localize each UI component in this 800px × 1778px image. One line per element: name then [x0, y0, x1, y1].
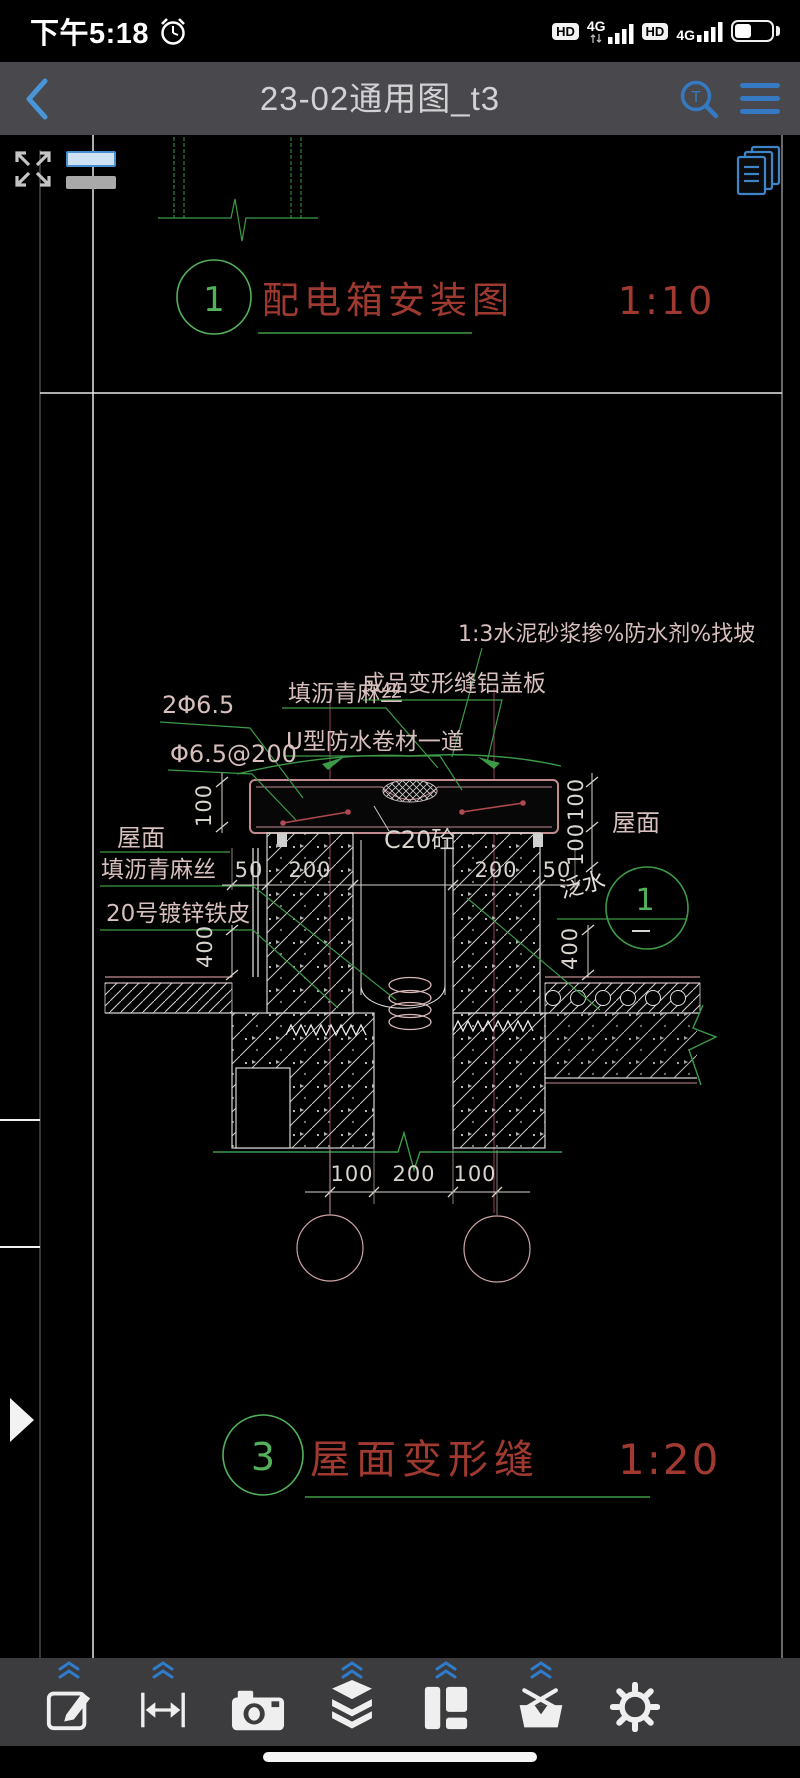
annotation-membrane: U型防水卷材一道 — [286, 729, 464, 755]
dim-400-left: 400 — [193, 925, 217, 968]
detail-1-number: 1 — [203, 280, 225, 320]
dim-100-bottom-right: 100 — [453, 1162, 496, 1186]
app-screen: 1 配电箱安装图 1:10 — [0, 0, 800, 1778]
network-type-2: 4G — [676, 28, 695, 42]
menu-button[interactable] — [734, 62, 786, 135]
gear-icon — [610, 1682, 660, 1732]
status-left: 下午5:18 — [30, 10, 188, 52]
expansion-joint-drawing: 1 — [100, 622, 755, 1282]
detail-3-number: 3 — [251, 1435, 275, 1479]
back-chevron-icon — [21, 76, 51, 122]
edit-tool-button[interactable] — [40, 1660, 98, 1744]
home-indicator[interactable] — [263, 1752, 537, 1762]
dim-50-left: 50 — [235, 858, 264, 882]
annotation-roof-right: 屋面 — [612, 809, 660, 837]
measure-icon — [138, 1688, 188, 1732]
camera-icon — [231, 1688, 285, 1732]
fullscreen-icon — [10, 146, 56, 192]
layers-icon — [327, 1680, 377, 1732]
line-style-alt-icon — [66, 176, 116, 189]
dim-100-bottom-left: 100 — [330, 1162, 373, 1186]
joint-filler-coil — [389, 978, 431, 1030]
line-style-button[interactable] — [66, 151, 116, 189]
right-triangle-icon — [6, 1396, 38, 1444]
toolbox-tool-button[interactable] — [512, 1660, 570, 1744]
detail-3-title: 屋面变形缝 — [310, 1437, 540, 1483]
annotation-concrete: C20砼 — [384, 826, 455, 854]
hamburger-menu-icon — [738, 81, 782, 117]
annotation-texts: 1:3水泥砂浆掺%防水剂%找坡 成品变形缝铝盖板 填沥青麻丝 U型防水卷材一道 … — [101, 622, 755, 927]
dim-100-left: 100 — [192, 784, 216, 827]
fullscreen-button[interactable] — [10, 146, 56, 195]
detail-1-scale: 1:10 — [618, 279, 715, 323]
line-style-selected-icon — [66, 151, 116, 167]
sheets-stack-icon — [733, 144, 785, 196]
battery-fill — [735, 24, 751, 38]
detail-1-title: 配电箱安装图 — [262, 279, 514, 322]
layout-blocks-icon — [422, 1684, 470, 1732]
data-arrows-icon — [590, 33, 602, 44]
status-bar: 下午5:18 HD 4G — [0, 0, 800, 62]
dim-200-left: 200 — [288, 858, 331, 882]
measure-tool-button[interactable] — [134, 1660, 192, 1744]
signal-bars-icon-1 — [608, 22, 634, 44]
annotation-roof-left: 屋面 — [117, 824, 165, 852]
left-roof-slab — [105, 977, 232, 1013]
expand-up-chevron-icon — [528, 1660, 554, 1680]
annotation-rebar-b: Φ6.5@200 — [170, 740, 297, 768]
layers-tool-button[interactable] — [323, 1660, 381, 1744]
signal-group-2: 4G — [676, 20, 723, 42]
expand-up-chevron-icon — [339, 1660, 365, 1680]
edit-icon — [44, 1684, 94, 1732]
annotation-asphalt-left: 填沥青麻丝 — [101, 857, 216, 883]
annotation-asphalt-top: 填沥青麻丝 — [288, 681, 403, 707]
alarm-icon — [158, 15, 188, 47]
bubble-number: 1 — [635, 883, 654, 918]
hd-badge-1: HD — [552, 23, 579, 40]
lower-wall-blocks — [232, 1013, 545, 1148]
dim-200-right: 200 — [474, 858, 517, 882]
signal-group-1: 4G — [587, 19, 634, 44]
sheet-manager-button[interactable] — [733, 144, 785, 199]
network-type-1: 4G — [587, 19, 606, 33]
detail-3-title-block: 3 屋面变形缝 1:20 — [223, 1415, 720, 1497]
hd-badge-2: HD — [642, 23, 669, 40]
upper-detail-remnant — [158, 137, 318, 241]
search-glyph: T — [691, 89, 701, 106]
expand-up-chevron-icon — [433, 1660, 459, 1680]
sheet-frame — [0, 135, 782, 1658]
bottom-toolbar — [0, 1658, 800, 1746]
dim-100-right-a: 100 — [564, 778, 588, 821]
detail-3-scale: 1:20 — [618, 1435, 720, 1484]
next-page-handle[interactable] — [6, 1396, 38, 1447]
text-search-button[interactable]: T — [674, 62, 724, 135]
text-search-icon: T — [676, 76, 722, 122]
camera-tool-button[interactable] — [229, 1660, 287, 1744]
expand-up-chevron-icon — [56, 1660, 82, 1680]
cad-drawing-canvas[interactable]: 1 配电箱安装图 1:10 — [0, 0, 800, 1778]
annotation-steel-sheet: 20号镀锌铁皮 — [106, 901, 250, 927]
nav-bar: 23-02通用图_t3 T — [0, 62, 800, 135]
clock-time: 下午5:18 — [30, 10, 149, 52]
battery-icon — [731, 20, 780, 42]
settings-button[interactable] — [606, 1660, 664, 1744]
axis-circle-right — [464, 1216, 530, 1282]
dim-200-bottom: 200 — [392, 1162, 435, 1186]
page-title: 23-02通用图_t3 — [80, 62, 680, 135]
back-button[interactable] — [14, 62, 58, 135]
layout-tool-button[interactable] — [417, 1660, 475, 1744]
detail-1-title-block: 1 配电箱安装图 1:10 — [177, 260, 715, 334]
dim-400-right: 400 — [558, 927, 582, 970]
right-roof-slab — [545, 977, 716, 1085]
status-right: HD 4G HD 4G — [552, 19, 780, 44]
axis-circle-left — [297, 1215, 363, 1281]
annotation-mortar: 1:3水泥砂浆掺%防水剂%找坡 — [458, 622, 755, 647]
toolbox-icon — [515, 1682, 567, 1732]
signal-bars-icon-2 — [697, 20, 723, 42]
expand-up-chevron-icon — [150, 1660, 176, 1680]
annotation-rebar-a: 2Φ6.5 — [162, 691, 234, 719]
